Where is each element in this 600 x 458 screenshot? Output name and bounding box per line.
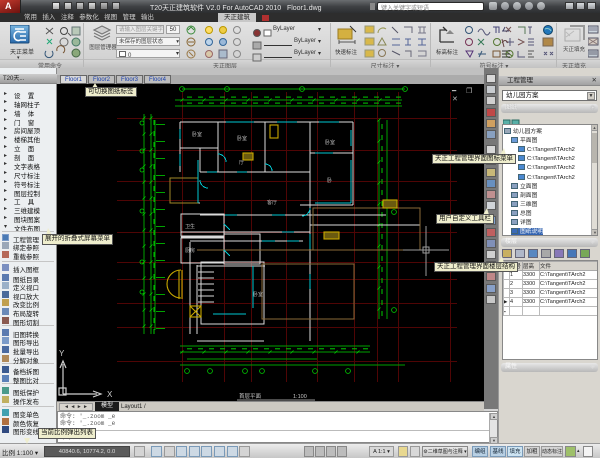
svg-text:卧: 卧 [327,177,332,184]
svg-text:厅: 厅 [239,160,244,166]
svg-text:卫生: 卫生 [185,223,195,230]
svg-text:首层平面: 首层平面 [239,392,262,400]
svg-text:1:100: 1:100 [293,394,307,400]
svg-text:Y: Y [59,349,65,358]
svg-text:X: X [107,390,113,399]
svg-text:客厅: 客厅 [267,199,277,206]
svg-text:厨房: 厨房 [185,247,195,254]
svg-text:卧室: 卧室 [237,135,247,142]
svg-text:卧室: 卧室 [253,291,263,298]
svg-text:卧室: 卧室 [325,139,335,146]
svg-text:卧室: 卧室 [192,131,202,138]
